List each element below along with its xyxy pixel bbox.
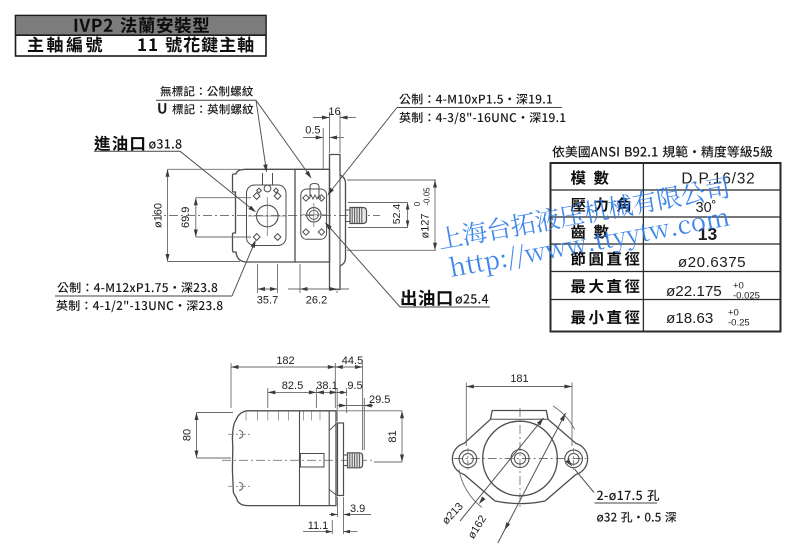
svg-text:3.9: 3.9 — [350, 503, 365, 515]
svg-text:-0.025: -0.025 — [733, 291, 760, 302]
svg-text:ø22.175: ø22.175 — [666, 283, 722, 300]
svg-text:30˚: 30˚ — [696, 200, 717, 216]
svg-text:69.9: 69.9 — [180, 207, 192, 228]
svg-text:35.7: 35.7 — [257, 295, 278, 307]
svg-text:D.P.16/32: D.P.16/32 — [681, 171, 755, 188]
svg-text:ø18.63: ø18.63 — [666, 310, 713, 327]
svg-text:ø20.6375: ø20.6375 — [678, 254, 746, 271]
svg-text:ø160: ø160 — [153, 203, 165, 228]
svg-text:38.1: 38.1 — [316, 380, 337, 392]
svg-text:29.5: 29.5 — [369, 394, 390, 406]
svg-text:9.5: 9.5 — [347, 380, 362, 392]
svg-text:26.2: 26.2 — [306, 295, 327, 307]
svg-text:ø127: ø127 — [420, 213, 432, 238]
svg-text:0.5: 0.5 — [305, 125, 320, 137]
svg-text:181: 181 — [510, 373, 528, 385]
svg-text:182: 182 — [276, 355, 294, 367]
svg-text:-0.05: -0.05 — [422, 187, 431, 206]
svg-text:13: 13 — [698, 224, 718, 244]
svg-text:81: 81 — [387, 430, 399, 442]
svg-text:-0.25: -0.25 — [728, 318, 750, 329]
svg-text:80: 80 — [182, 429, 194, 441]
svg-text:0: 0 — [413, 201, 422, 206]
svg-text:44.5: 44.5 — [342, 355, 363, 367]
svg-text:16: 16 — [328, 106, 340, 118]
svg-text:11.1: 11.1 — [308, 520, 329, 532]
svg-text:82.5: 82.5 — [282, 380, 303, 392]
svg-text:52.4: 52.4 — [391, 204, 403, 225]
